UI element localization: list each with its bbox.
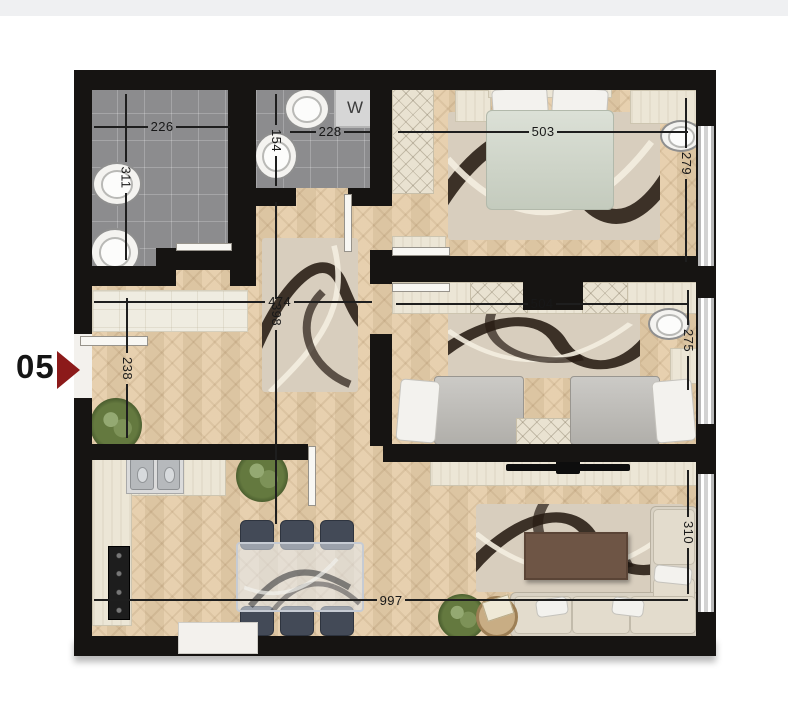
wall-corridor-lower: [370, 334, 392, 446]
kitchen-door-leaf: [308, 446, 316, 506]
dim-hall-width: 474: [94, 294, 372, 309]
dim-bedroom2-depth: 275: [680, 290, 696, 390]
bedroom2-door-leaf: [392, 283, 450, 292]
dim-wc-width: 228: [290, 124, 370, 139]
bottom-wall-recess: [178, 622, 258, 654]
bedroom1-door-leaf: [392, 247, 450, 256]
washing-machine-label: W: [347, 98, 363, 118]
dim-label: 154: [270, 129, 283, 152]
wall-bathroom-bottom: [74, 266, 176, 286]
kitchen-sink: [126, 454, 184, 494]
dim-label: 275: [682, 329, 695, 352]
wall-bathroom-wc-divider: [228, 86, 256, 268]
bedroom1-window: [698, 126, 714, 266]
wall-living-top: [383, 444, 696, 462]
unit-number: 05: [16, 348, 55, 386]
wall-bathroom-bottom-stub: [230, 266, 256, 286]
dim-wc-depth: 154: [268, 94, 284, 186]
dim-bedroom1-width: 503: [398, 124, 688, 139]
bedroom2-rug: [448, 310, 640, 378]
coffee-table: [524, 532, 628, 580]
living-room-window: [698, 474, 714, 612]
wall-corridor-mid: [370, 250, 392, 284]
dim-label: 503: [529, 125, 558, 138]
outer-wall-bottom: [74, 636, 716, 656]
bedroom2-foot-bench: [516, 418, 572, 445]
entrance-door-leaf: [80, 336, 148, 346]
bed-pillow: [395, 378, 440, 443]
outer-wall-left-lower: [74, 398, 92, 656]
dim-label: 997: [377, 594, 406, 607]
dim-label: 279: [680, 152, 693, 175]
dim-label: 226: [148, 120, 177, 133]
dim-label: 398: [270, 303, 283, 326]
bedroom2-single-bed-right: [570, 376, 660, 445]
dim-label: 311: [120, 166, 133, 188]
outer-wall-left-upper: [74, 70, 92, 334]
toilet-bowl: [292, 96, 322, 124]
wall-bedroom1-left: [370, 86, 392, 198]
entrance-arrow-icon: [57, 351, 80, 389]
dim-label: 228: [316, 125, 345, 138]
bedroom2-single-bed-left: [434, 376, 524, 445]
dim-label: 238: [121, 357, 134, 380]
dim-bathroom-width: 226: [94, 119, 230, 134]
dim-open-area-width: 997: [94, 592, 688, 608]
dim-entry-width: 238: [119, 298, 135, 438]
wall-bedrooms-divider: [392, 256, 696, 282]
dim-bathroom-depth: 311: [118, 94, 134, 260]
dim-living-depth: 310: [680, 470, 696, 594]
dim-hall-depth: 398: [268, 202, 284, 524]
bathroom-door-leaf: [176, 243, 232, 251]
dim-label: 310: [682, 521, 695, 544]
outer-wall-top: [74, 70, 716, 90]
dim-bedroom2-width: 504: [396, 296, 688, 311]
sink-basin: [157, 458, 181, 490]
floor-plan-canvas: W: [0, 0, 788, 713]
bedroom1-wardrobe: [392, 88, 434, 194]
page-top-strip: [0, 0, 788, 16]
dim-label: 504: [528, 297, 557, 310]
sink-basin: [130, 458, 154, 490]
dim-bedroom1-depth: 279: [678, 98, 694, 262]
stove-cooktop: [108, 546, 130, 620]
rug-pattern: [448, 310, 640, 378]
bathroom-toilet: [92, 162, 142, 206]
tv-mount: [556, 460, 580, 474]
wc-door-leaf: [344, 194, 352, 252]
bedroom2-window: [698, 298, 714, 424]
